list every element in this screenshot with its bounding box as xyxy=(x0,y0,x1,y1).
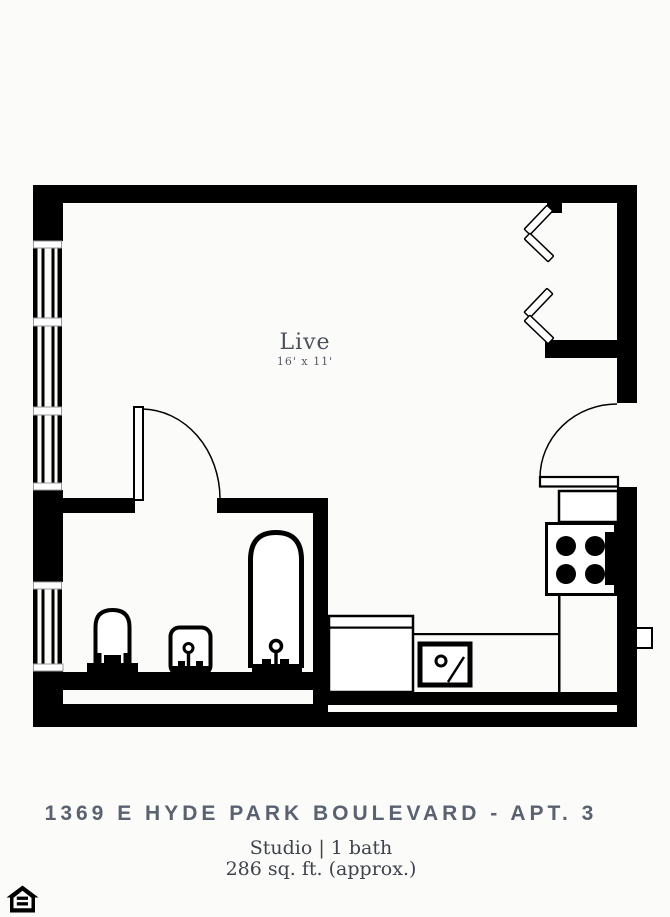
unit-type: Studio | 1 bath xyxy=(0,838,642,859)
window-upper xyxy=(33,241,62,490)
closet-bifold-doors xyxy=(524,205,553,343)
kitchen-counter xyxy=(329,595,652,692)
bathroom-door xyxy=(134,407,220,500)
stove xyxy=(547,524,617,595)
address-title: 1369 E HYDE PARK BOULEVARD - APT. 3 xyxy=(0,802,642,826)
left-windows xyxy=(33,241,63,671)
floor-plan-page: Live 16' x 11' 1369 E HYDE PARK BOULEVAR… xyxy=(0,0,670,917)
entry-door xyxy=(540,404,618,487)
refrigerator xyxy=(559,491,618,522)
footer: 1369 E HYDE PARK BOULEVARD - APT. 3 Stud… xyxy=(0,802,642,880)
equal-housing-icon xyxy=(7,886,39,913)
bathtub xyxy=(251,533,303,676)
window-lower xyxy=(33,582,63,671)
kitchen-sink xyxy=(420,644,470,685)
floor-plan-drawing xyxy=(0,0,670,917)
bathroom-sink xyxy=(171,628,211,676)
area-text: 286 sq. ft. (approx.) xyxy=(0,859,642,880)
toilet xyxy=(87,610,138,678)
